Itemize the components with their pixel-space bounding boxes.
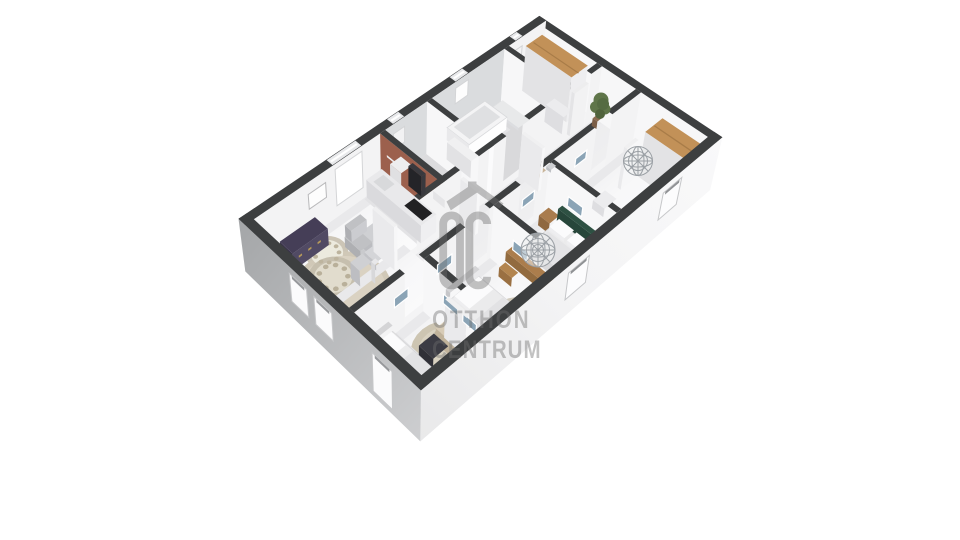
svg-text:CENTRUM: CENTRUM	[432, 335, 541, 363]
svg-text:OTTHON: OTTHON	[432, 305, 530, 333]
